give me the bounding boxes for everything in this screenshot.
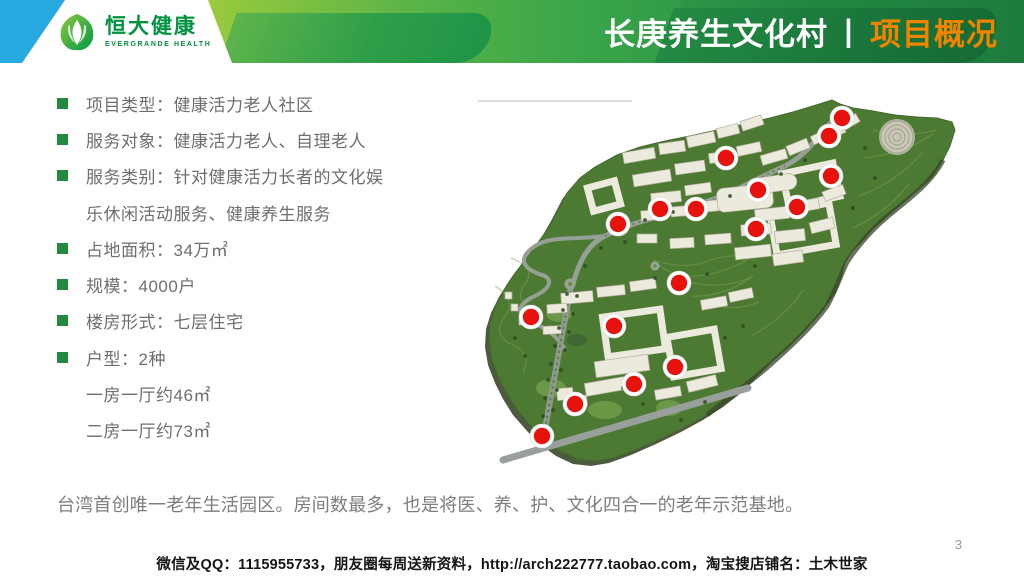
bullet-text: 服务对象：健康活力老人、自理老人 bbox=[86, 127, 366, 152]
map-marker-dot bbox=[606, 212, 630, 236]
bullet-item: 规模：4000户 bbox=[57, 266, 457, 302]
bullet-text: 服务类别：针对健康活力长者的文化娱 bbox=[86, 163, 384, 188]
footer-contact: 微信及QQ：1115955733，朋友圈每周送新资料，http://arch22… bbox=[0, 553, 1024, 574]
bullet-text: 占地面积：34万㎡ bbox=[86, 236, 228, 261]
map-marker-dot bbox=[602, 314, 626, 338]
map-marker-dot bbox=[714, 146, 738, 170]
bullet-square-icon bbox=[57, 170, 68, 181]
labyrinth-icon bbox=[879, 119, 915, 155]
map-marker-dot bbox=[563, 392, 587, 416]
page-number: 3 bbox=[955, 537, 962, 552]
map-marker-dot bbox=[819, 164, 843, 188]
bullet-square-icon bbox=[57, 279, 68, 290]
evergrande-leaf-icon bbox=[57, 12, 97, 52]
header-bar: 恒大健康 EVERGRANDE HEALTH 长庚养生文化村 丨 项目概况 bbox=[0, 0, 1024, 63]
bullet-item: 乐休闲活动服务、健康养生服务 bbox=[57, 194, 457, 230]
site-map bbox=[455, 88, 995, 478]
project-bullets: 项目类型：健康活力老人社区服务对象：健康活力老人、自理老人服务类别：针对健康活力… bbox=[57, 85, 457, 448]
bullet-item: 服务类别：针对健康活力长者的文化娱 bbox=[57, 158, 457, 194]
slide-root: 恒大健康 EVERGRANDE HEALTH 长庚养生文化村 丨 项目概况 项目… bbox=[0, 0, 1024, 576]
bullet-item: 服务对象：健康活力老人、自理老人 bbox=[57, 121, 457, 157]
bullet-text: 一房一厅约46㎡ bbox=[86, 381, 211, 406]
bullet-square-icon bbox=[57, 315, 68, 326]
bullet-item: 二房一厅约73㎡ bbox=[57, 412, 457, 448]
map-marker-dot bbox=[785, 195, 809, 219]
bullet-square-icon bbox=[57, 243, 68, 254]
map-marker-dot bbox=[663, 355, 687, 379]
bullet-text: 二房一厅约73㎡ bbox=[86, 417, 211, 442]
slide-title: 长庚养生文化村 丨 项目概况 bbox=[604, 0, 998, 63]
bullet-text: 项目类型：健康活力老人社区 bbox=[86, 91, 314, 116]
map-marker-dot bbox=[667, 271, 691, 295]
evergrande-health-logo: 恒大健康 EVERGRANDE HEALTH bbox=[57, 12, 211, 52]
map-marker-dot bbox=[530, 424, 554, 448]
map-marker-dot bbox=[622, 372, 646, 396]
header-deco-capsule bbox=[219, 13, 498, 63]
bullet-item: 户型：2种 bbox=[57, 339, 457, 375]
title-main: 长庚养生文化村 bbox=[604, 9, 828, 54]
map-marker-dot bbox=[684, 197, 708, 221]
bullet-item: 楼房形式：七层住宅 bbox=[57, 303, 457, 339]
map-marker-dot bbox=[744, 217, 768, 241]
title-separator: 丨 bbox=[833, 9, 865, 54]
bullet-square-icon bbox=[57, 134, 68, 145]
bullet-text: 户型：2种 bbox=[86, 345, 166, 370]
summary-text: 台湾首创唯一老年生活园区。房间数最多，也是将医、养、护、文化四合一的老年示范基地… bbox=[57, 491, 977, 517]
bullet-item: 一房一厅约46㎡ bbox=[57, 375, 457, 411]
map-marker-dot bbox=[519, 305, 543, 329]
bullet-item: 项目类型：健康活力老人社区 bbox=[57, 85, 457, 121]
logo-brand-en: EVERGRANDE HEALTH bbox=[105, 41, 211, 48]
title-section: 项目概况 bbox=[870, 9, 998, 54]
map-marker-dot bbox=[817, 124, 841, 148]
bullet-text: 乐休闲活动服务、健康养生服务 bbox=[86, 200, 331, 225]
map-marker-dot bbox=[648, 197, 672, 221]
bullet-square-icon bbox=[57, 98, 68, 109]
bullet-item: 占地面积：34万㎡ bbox=[57, 230, 457, 266]
logo-brand-cn: 恒大健康 bbox=[105, 16, 211, 37]
bullet-text: 规模：4000户 bbox=[86, 272, 196, 297]
bullet-text: 楼房形式：七层住宅 bbox=[86, 308, 244, 333]
map-marker-dot bbox=[746, 178, 770, 202]
bullet-square-icon bbox=[57, 352, 68, 363]
